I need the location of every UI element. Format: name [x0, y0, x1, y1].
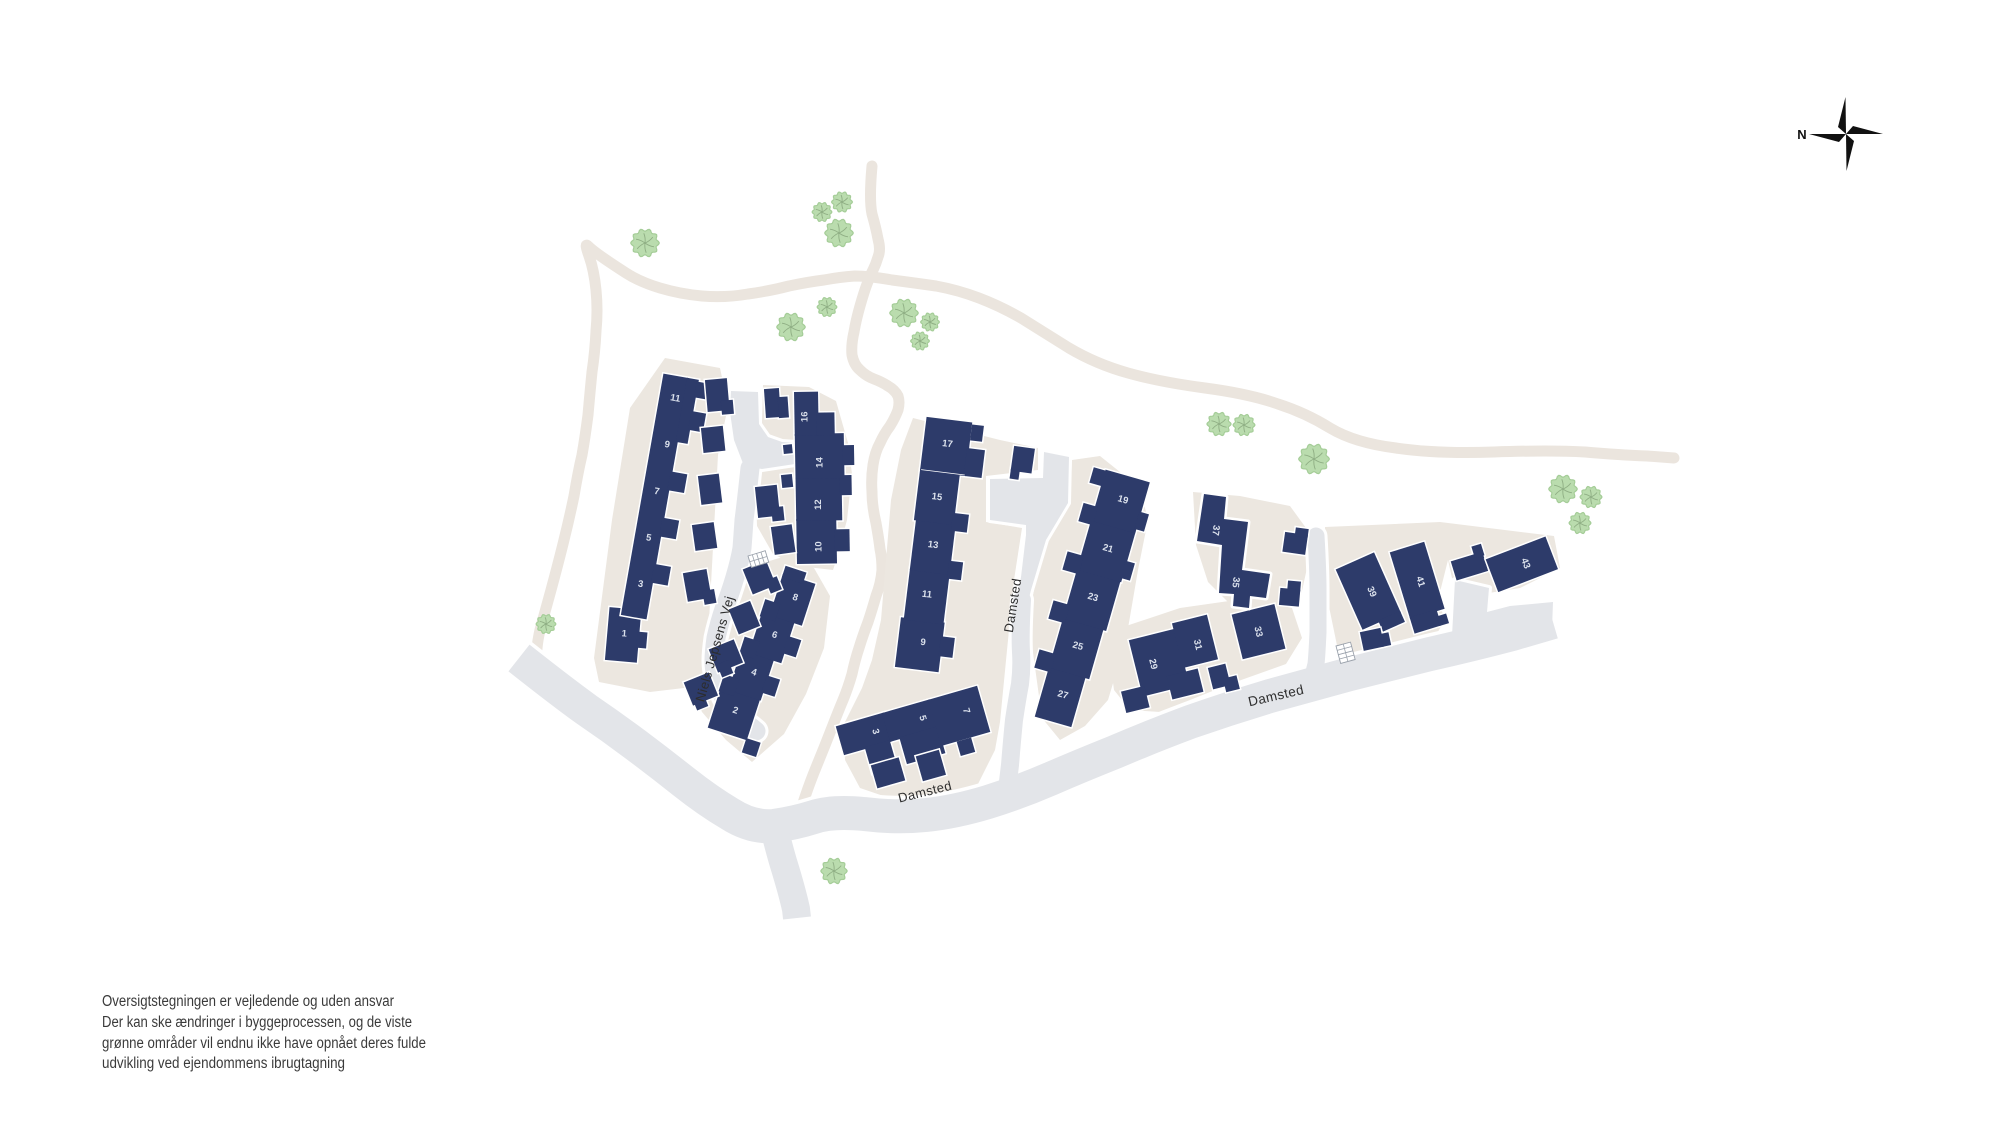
svg-text:14: 14 — [814, 457, 825, 468]
svg-text:Oversigtstegningen er vejleden: Oversigtstegningen er vejledende og uden… — [102, 993, 394, 1010]
svg-text:12: 12 — [813, 499, 824, 510]
svg-text:udvikling ved ejendommens ibru: udvikling ved ejendommens ibrugtagning — [102, 1055, 345, 1072]
svg-text:15: 15 — [931, 491, 944, 503]
svg-text:grønne områder vil endnu ikke: grønne områder vil endnu ikke have opnåe… — [102, 1035, 426, 1052]
svg-text:37: 37 — [1209, 524, 1221, 536]
svg-text:N: N — [1797, 127, 1806, 142]
svg-text:Der kan ske ændringer i byggep: Der kan ske ændringer i byggeprocessen, … — [102, 1014, 412, 1031]
svg-text:17: 17 — [942, 438, 954, 450]
svg-text:13: 13 — [927, 539, 939, 551]
svg-text:35: 35 — [1229, 576, 1241, 589]
svg-text:16: 16 — [799, 412, 810, 423]
svg-text:10: 10 — [814, 541, 825, 552]
